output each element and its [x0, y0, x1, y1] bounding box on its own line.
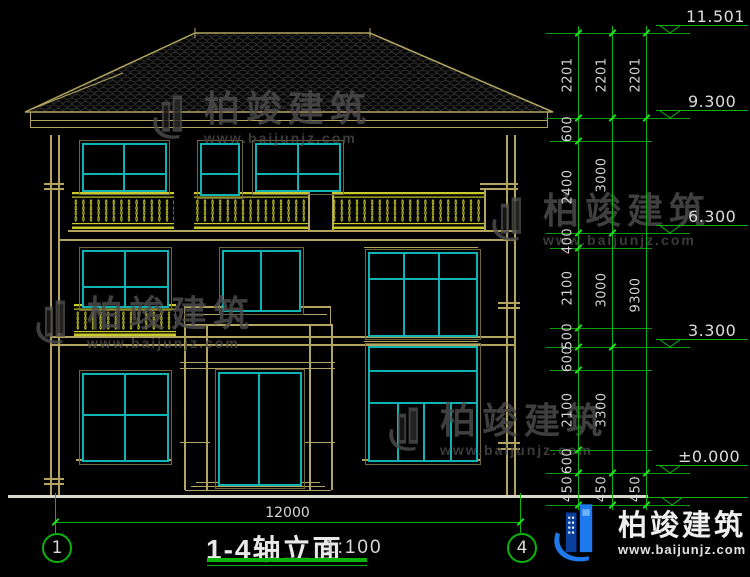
level-triangle-icon	[658, 225, 682, 234]
dim-label: 400	[561, 228, 576, 254]
dim-label: 2201	[561, 57, 576, 92]
dim-label: 3000	[595, 272, 610, 307]
extension-line	[520, 493, 521, 533]
dim-chain-line	[578, 26, 579, 510]
dim-label: 3000	[595, 157, 610, 192]
footer-logo-site: www.baijunjz.com	[618, 542, 746, 557]
level-label: ±0.000	[678, 447, 740, 466]
level-triangle-icon	[658, 110, 682, 119]
footer-logo-icon	[546, 498, 612, 570]
level-label: 9.300	[688, 92, 736, 111]
entrance-door	[218, 372, 302, 486]
axis-bubble-4: 4	[507, 533, 537, 563]
watermark-logo-icon	[486, 192, 536, 248]
balcony-railing-3f-center	[194, 192, 308, 229]
watermark: 柏竣建筑 www.baijunjz.com	[486, 192, 711, 248]
dim-label: 600	[561, 448, 576, 474]
level-label: 3.300	[688, 321, 736, 340]
footer-logo: 柏竣建筑 www.baijunjz.com	[546, 498, 746, 570]
dim-label: 600	[561, 116, 576, 142]
watermark: 柏竣建筑 www.baijunjz.com	[30, 295, 255, 351]
watermark-brand: 柏竣建筑	[204, 91, 372, 127]
watermark-logo-icon	[147, 90, 197, 146]
drawing-title: 1-4轴立面	[206, 528, 342, 568]
balcony-railing-3f-left	[72, 192, 174, 229]
bottom-dim-label: 12000	[55, 505, 520, 521]
dim-label: 2100	[561, 270, 576, 305]
dim-label: 3300	[595, 392, 610, 427]
dim-label: 2201	[595, 57, 610, 92]
level-label: 6.300	[688, 207, 736, 226]
window-2f-right	[368, 252, 478, 337]
title-underline	[207, 558, 367, 562]
watermark-site: www.baijunjz.com	[204, 130, 372, 146]
dim-label: 600	[561, 346, 576, 372]
dim-label: 2100	[561, 392, 576, 427]
dim-label: 2400	[561, 169, 576, 204]
watermark-brand: 柏竣建筑	[87, 296, 255, 332]
dim-chain-line	[646, 26, 647, 510]
dim-label: 2201	[629, 57, 644, 92]
balcony-door-3f	[200, 143, 240, 196]
title-underline-thin	[207, 565, 367, 566]
watermark-site: www.baijunjz.com	[87, 335, 255, 351]
watermark-logo-icon	[30, 295, 80, 351]
footer-logo-brand: 柏竣建筑	[618, 511, 746, 543]
window-3f-center	[255, 143, 341, 192]
level-label: 11.501	[686, 7, 745, 26]
dim-chain-line	[612, 26, 613, 510]
level-triangle-icon	[658, 465, 682, 474]
dim-label: 9300	[629, 277, 644, 312]
watermark-brand: 柏竣建筑	[440, 403, 608, 439]
cad-drawing-canvas: 2201 2201 2201 600 2400 400 2100 500 600…	[0, 0, 750, 577]
drawing-scale: 1:100	[325, 537, 383, 559]
window-1f-left	[82, 373, 169, 462]
level-triangle-icon	[658, 25, 682, 34]
bottom-dim-line	[55, 522, 521, 523]
level-triangle-icon	[658, 339, 682, 348]
watermark: 柏竣建筑 www.baijunjz.com	[147, 90, 372, 146]
watermark-logo-icon	[383, 402, 433, 458]
window-3f-left	[82, 143, 167, 192]
balcony-railing-3f-right	[332, 192, 484, 229]
axis-bubble-1: 1	[42, 533, 72, 563]
